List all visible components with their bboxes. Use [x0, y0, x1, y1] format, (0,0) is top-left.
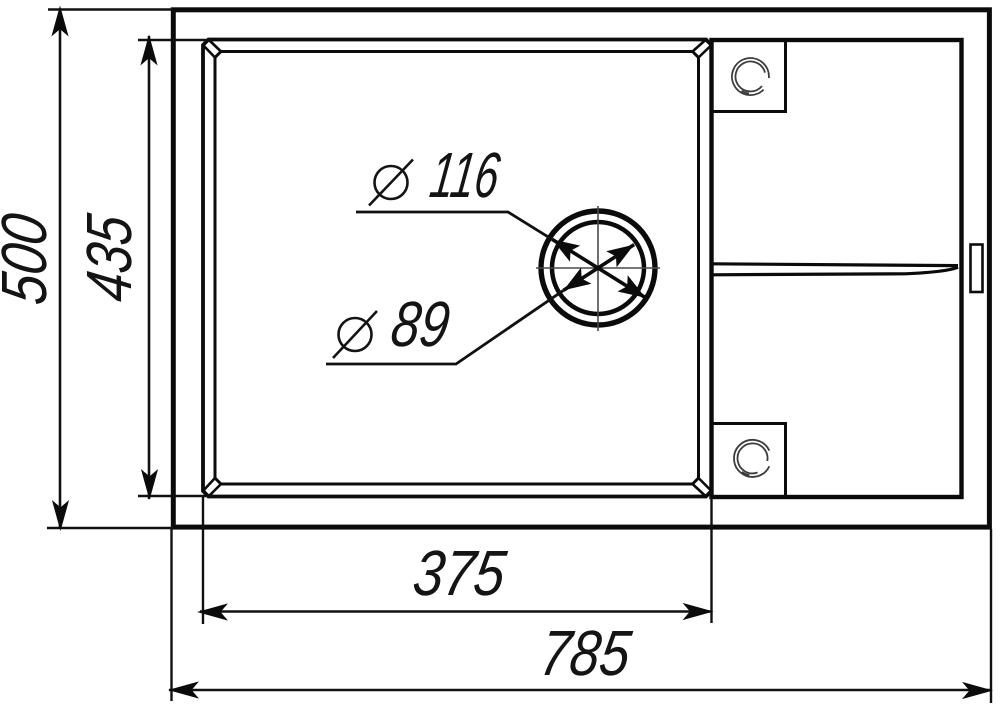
- svg-text:785: 785: [536, 617, 635, 689]
- svg-text:116: 116: [426, 139, 504, 211]
- svg-text:375: 375: [409, 537, 510, 609]
- svg-text:435: 435: [73, 210, 145, 305]
- svg-text:89: 89: [387, 288, 454, 360]
- svg-text:500: 500: [0, 209, 60, 308]
